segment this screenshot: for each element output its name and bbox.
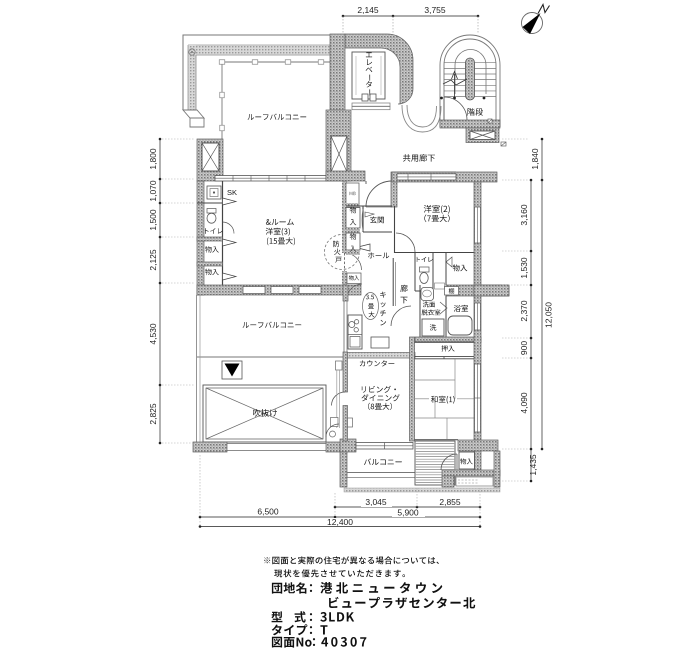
svg-text:6,500: 6,500 — [257, 507, 279, 517]
svg-text:2,145: 2,145 — [357, 5, 379, 15]
svg-text:1,530: 1,530 — [519, 257, 529, 279]
svg-text:4,090: 4,090 — [519, 392, 529, 414]
svg-text:3,045: 3,045 — [365, 497, 387, 507]
svg-text:3,160: 3,160 — [519, 204, 529, 226]
svg-text:1,070: 1,070 — [148, 180, 158, 202]
svg-text:12,050: 12,050 — [544, 302, 554, 328]
svg-text:2,825: 2,825 — [148, 403, 158, 425]
svg-text:900: 900 — [519, 341, 529, 355]
svg-text:1,800: 1,800 — [148, 148, 158, 170]
svg-text:2,855: 2,855 — [439, 497, 461, 507]
svg-text:1,840: 1,840 — [530, 148, 540, 170]
svg-text:1,500: 1,500 — [148, 209, 158, 231]
svg-text:SK: SK — [227, 188, 237, 197]
svg-text:4,530: 4,530 — [148, 323, 158, 345]
svg-text:1,435: 1,435 — [528, 454, 538, 476]
svg-text:5,900: 5,900 — [397, 508, 419, 518]
svg-text:2,125: 2,125 — [148, 249, 158, 271]
svg-text:12,400: 12,400 — [327, 517, 353, 527]
svg-text:2,370: 2,370 — [519, 300, 529, 322]
svg-text:3,755: 3,755 — [424, 5, 446, 15]
